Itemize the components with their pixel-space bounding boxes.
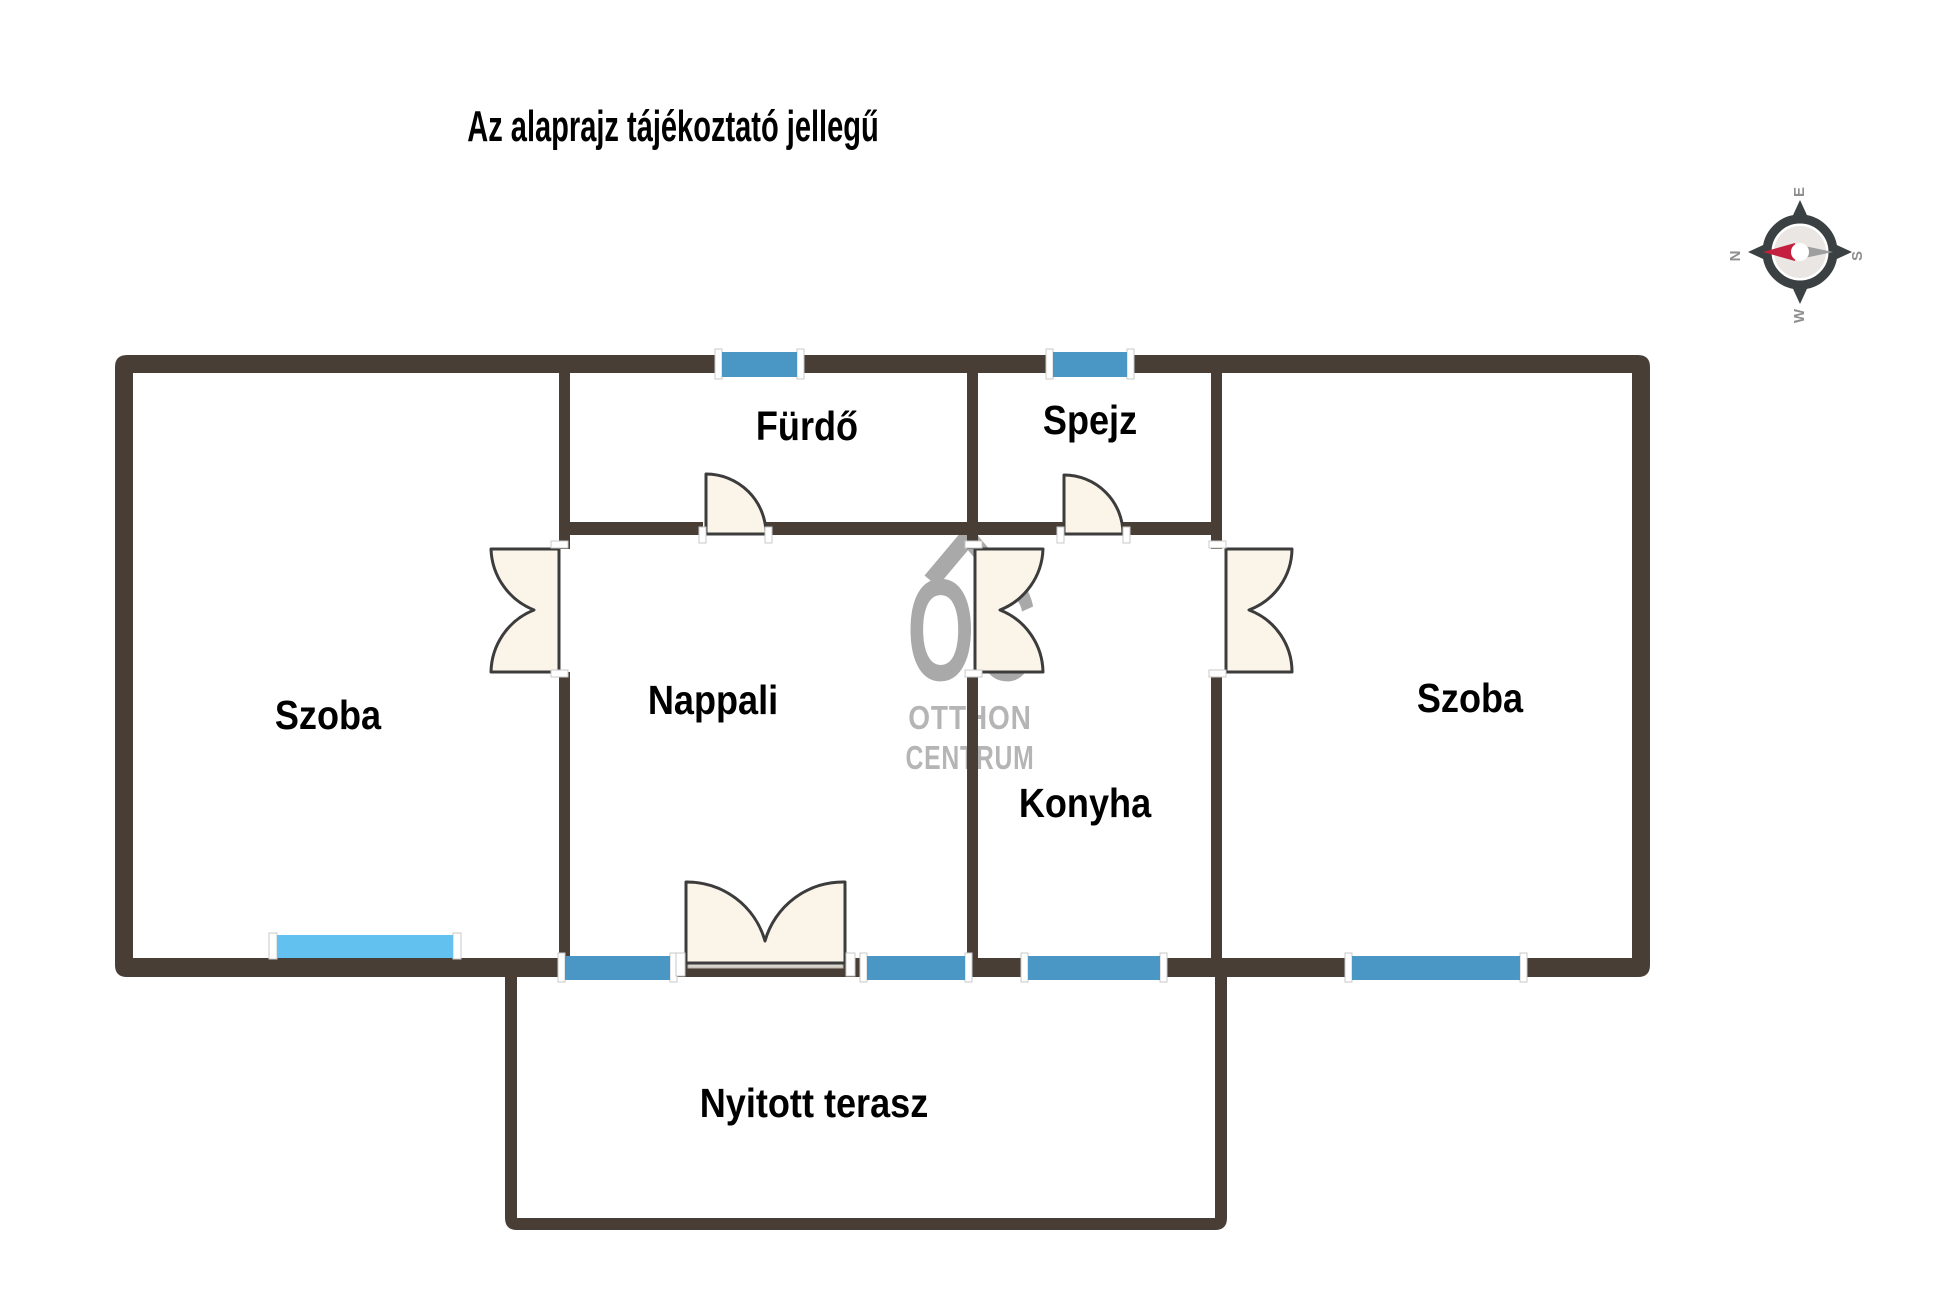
room-label-terasz: Nyitott terasz xyxy=(638,1081,990,1125)
window-szoba-left xyxy=(277,935,453,958)
window-furdo xyxy=(722,352,797,377)
door-terasz-double xyxy=(686,882,845,963)
room-label-nappali: Nappali xyxy=(537,678,889,722)
window-konyha xyxy=(1028,956,1160,980)
outer-walls xyxy=(115,355,1650,977)
window-nappali-left xyxy=(565,956,670,980)
compass-rose: N E S W xyxy=(1727,187,1866,323)
floorplan-canvas: Az alaprajz tájékoztató jellegű OC OTTHO… xyxy=(0,0,1940,1300)
window-nappali-right xyxy=(867,956,965,980)
interior-walls xyxy=(559,373,1222,977)
door-szoba-right-double xyxy=(1226,549,1292,672)
room-label-szoba-right: Szoba xyxy=(1294,676,1646,720)
compass-label-e: E xyxy=(1791,187,1808,197)
door-jambs xyxy=(551,527,1226,976)
compass-label-n: N xyxy=(1727,251,1744,262)
window-szoba-right xyxy=(1352,956,1520,980)
compass-label-s: S xyxy=(1849,251,1866,261)
door-spejz xyxy=(1064,475,1123,534)
compass-label-w: W xyxy=(1791,308,1808,323)
compass-hub xyxy=(1791,243,1809,261)
door-szoba-left-double xyxy=(491,549,559,672)
room-label-konyha: Konyha xyxy=(909,781,1261,825)
door-furdo xyxy=(706,474,766,534)
window-spejz xyxy=(1053,352,1127,377)
room-label-spejz: Spejz xyxy=(914,398,1266,442)
room-label-szoba-left: Szoba xyxy=(152,693,504,737)
